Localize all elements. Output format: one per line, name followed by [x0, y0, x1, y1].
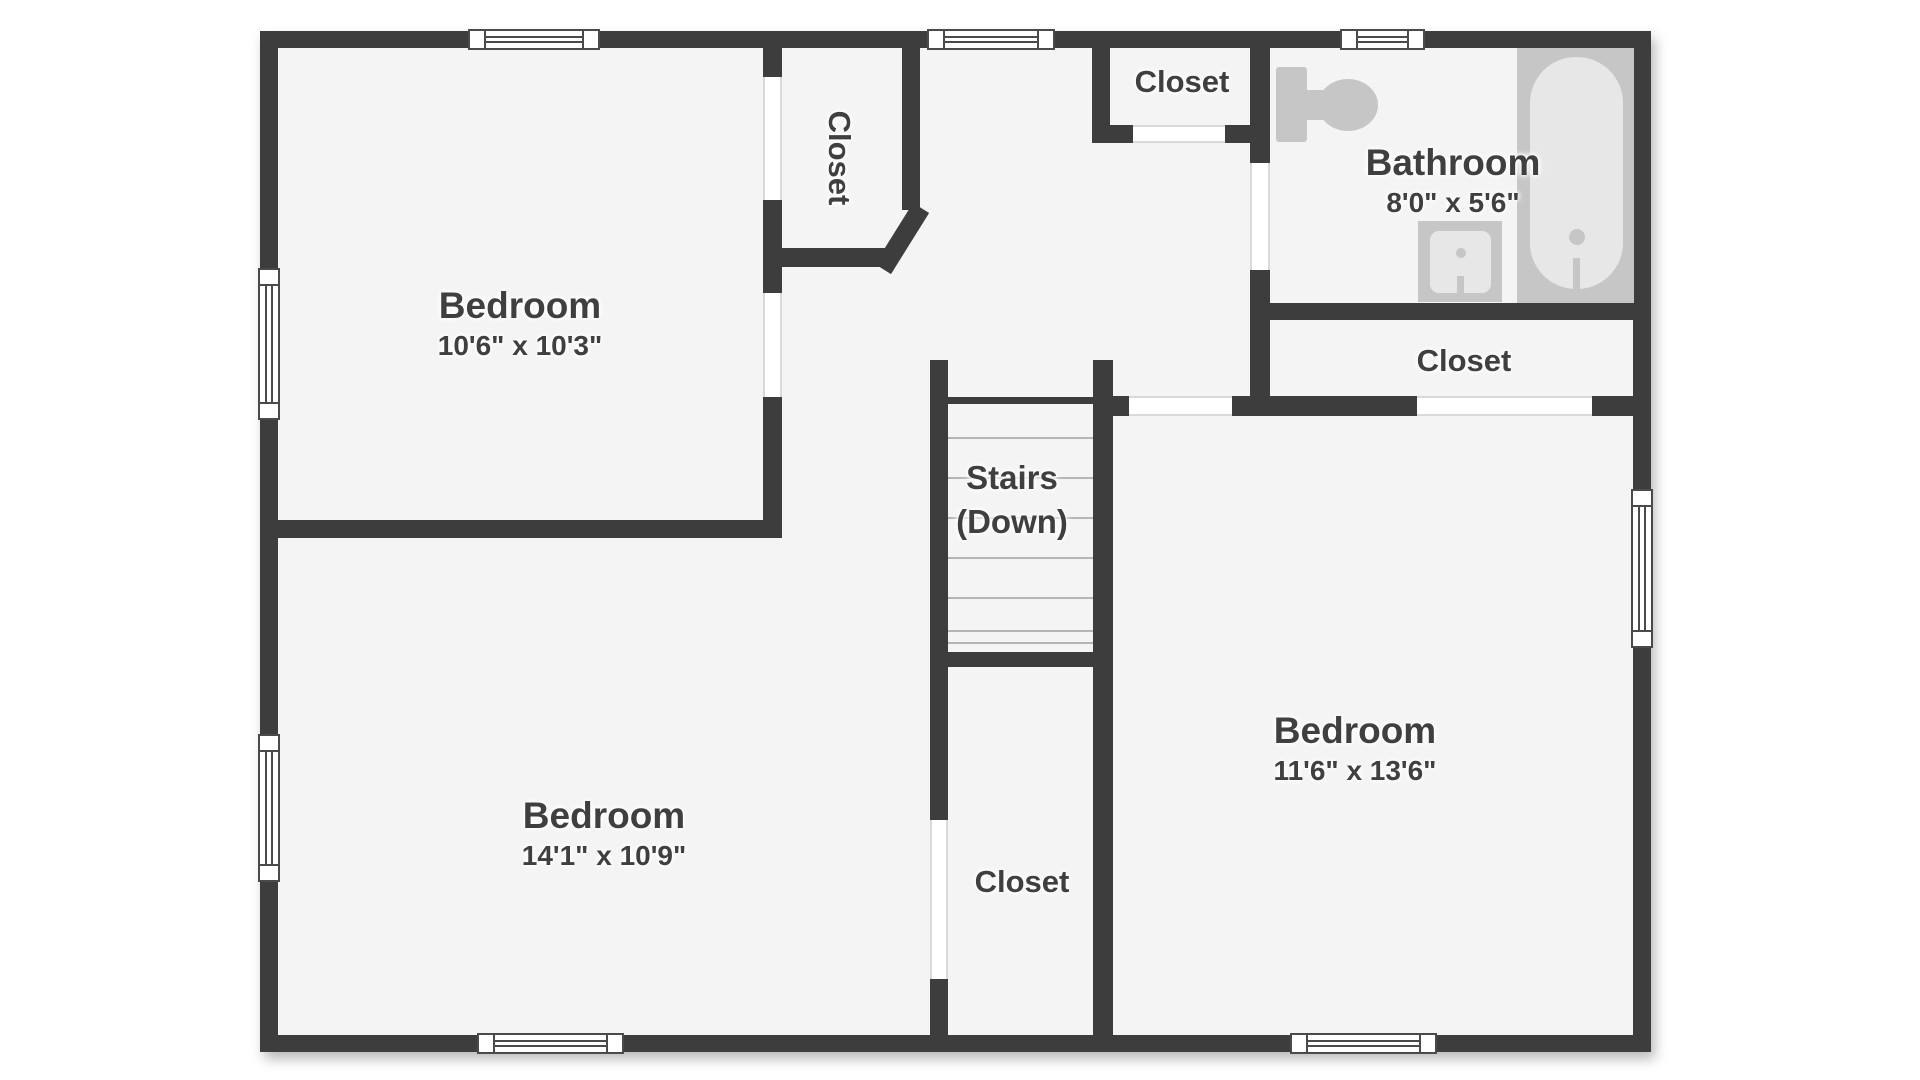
interior-wall	[930, 979, 948, 1035]
window	[477, 1033, 624, 1054]
interior-wall	[763, 397, 782, 538]
room-label-bedroom-bottom-left: Bedroom 14'1" x 10'9"	[522, 794, 686, 874]
room-label-bedroom-right: Bedroom 11'6" x 13'6"	[1274, 709, 1437, 789]
door-opening	[930, 820, 948, 979]
interior-wall	[902, 31, 920, 210]
room-label-bathroom: Bathroom 8'0" x 5'6"	[1366, 141, 1541, 221]
interior-wall	[1250, 31, 1270, 163]
window	[1631, 489, 1653, 648]
door-opening	[1133, 125, 1225, 143]
interior-wall	[1250, 303, 1651, 320]
door-opening	[1129, 396, 1232, 416]
door-opening	[1250, 163, 1270, 270]
room-label-closet-bottom: Closet	[975, 864, 1070, 900]
door-opening	[763, 293, 782, 397]
interior-wall	[1092, 125, 1133, 143]
interior-wall	[260, 520, 782, 538]
room-label-closet-top: Closet	[1135, 64, 1230, 100]
interior-wall	[930, 667, 948, 820]
window	[468, 29, 600, 50]
stairs-wall-bottom	[930, 652, 1113, 667]
window	[1340, 29, 1425, 50]
exterior-wall-left	[260, 31, 278, 1052]
floor-plan: Bedroom 10'6" x 10'3" Bedroom 14'1" x 10…	[0, 0, 1920, 1080]
room-label-closet-right: Closet	[1417, 343, 1512, 379]
stairs-wall-left	[930, 360, 948, 667]
window	[927, 29, 1055, 50]
window	[1290, 1033, 1437, 1054]
room-label-closet-vertical: Closet	[821, 111, 857, 206]
interior-wall	[1592, 396, 1651, 416]
door-opening	[1417, 396, 1592, 416]
interior-wall	[1250, 270, 1270, 416]
stairs-top-edge	[948, 397, 1093, 404]
stairs-wall-right	[1093, 360, 1113, 1035]
window	[258, 268, 280, 420]
interior-wall	[1232, 396, 1417, 416]
interior-wall	[763, 31, 782, 77]
interior-wall	[763, 200, 782, 293]
interior-wall	[763, 248, 885, 267]
room-label-bedroom-top-left: Bedroom 10'6" x 10'3"	[438, 284, 602, 364]
door-opening	[763, 77, 782, 200]
window	[258, 734, 280, 882]
room-label-stairs: Stairs (Down)	[956, 456, 1068, 544]
exterior-wall-bottom	[260, 1035, 1651, 1052]
